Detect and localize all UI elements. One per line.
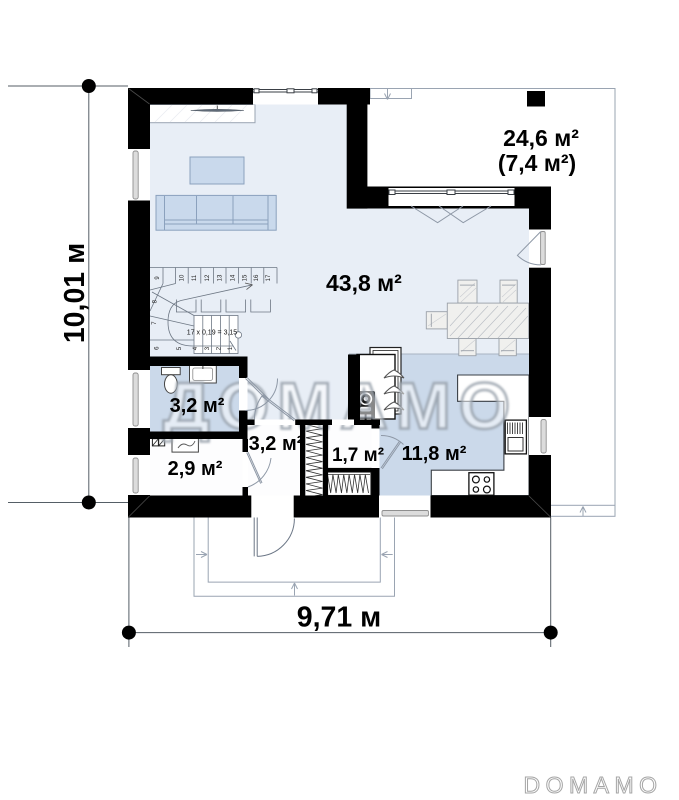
svg-text:17 x 0,19 = 3,15: 17 x 0,19 = 3,15 bbox=[187, 330, 238, 337]
svg-text:24,6 м²: 24,6 м² bbox=[503, 125, 579, 151]
svg-text:2,9 м²: 2,9 м² bbox=[168, 458, 223, 480]
svg-text:10,01 м: 10,01 м bbox=[59, 243, 91, 343]
svg-text:11: 11 bbox=[192, 274, 198, 281]
svg-text:9,71 м: 9,71 м bbox=[297, 602, 381, 634]
svg-text:10: 10 bbox=[179, 274, 185, 281]
svg-text:3,2 м²: 3,2 м² bbox=[170, 395, 225, 417]
svg-text:12: 12 bbox=[205, 274, 211, 281]
svg-text:11,8 м²: 11,8 м² bbox=[402, 443, 467, 465]
svg-text:13: 13 bbox=[218, 274, 224, 281]
svg-text:15: 15 bbox=[242, 274, 248, 281]
svg-text:3,2 м²: 3,2 м² bbox=[249, 433, 304, 455]
svg-text:43,8 м²: 43,8 м² bbox=[326, 270, 402, 296]
svg-text:17: 17 bbox=[266, 274, 272, 281]
svg-text:16: 16 bbox=[254, 274, 260, 281]
svg-text:14: 14 bbox=[231, 274, 237, 281]
svg-text:DOMAMO: DOMAMO bbox=[523, 772, 662, 798]
svg-text:1,7 м²: 1,7 м² bbox=[332, 445, 384, 466]
svg-text:(7,4 м²): (7,4 м²) bbox=[498, 150, 576, 176]
